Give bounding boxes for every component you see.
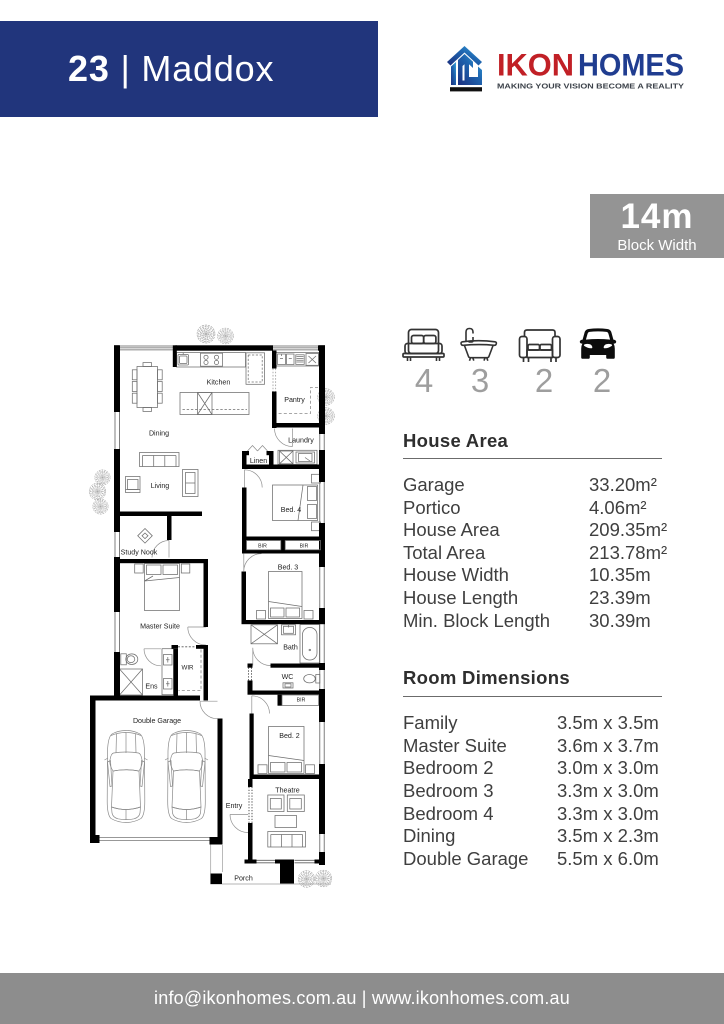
svg-text:Linen: Linen — [250, 457, 267, 465]
svg-text:Ens: Ens — [145, 683, 158, 691]
svg-text:Living: Living — [151, 482, 170, 490]
svg-text:Bath: Bath — [283, 644, 298, 652]
svg-text:Double Garage: Double Garage — [133, 717, 181, 725]
svg-text:Study Nook: Study Nook — [121, 549, 158, 557]
svg-text:IKON: IKON — [497, 47, 574, 83]
svg-text:BIR: BIR — [297, 698, 306, 704]
svg-text:Master Suite: Master Suite — [140, 623, 180, 631]
svg-text:Theatre: Theatre — [275, 787, 300, 795]
svg-text:BIR: BIR — [258, 543, 267, 549]
svg-text:Bed. 3: Bed. 3 — [278, 564, 299, 572]
svg-text:Laundry: Laundry — [288, 437, 314, 445]
svg-text:MAKING YOUR VISION BECOME A RE: MAKING YOUR VISION BECOME A REALITY — [497, 82, 684, 91]
svg-text:Entry: Entry — [226, 802, 243, 810]
svg-text:HOMES: HOMES — [578, 47, 684, 83]
svg-text:Porch: Porch — [234, 875, 253, 883]
svg-text:Bed. 4: Bed. 4 — [281, 506, 302, 514]
svg-text:WC: WC — [282, 673, 294, 681]
svg-text:Kitchen: Kitchen — [207, 379, 231, 387]
svg-text:Pantry: Pantry — [284, 396, 305, 404]
svg-text:WIR: WIR — [181, 665, 194, 672]
svg-text:Bed. 2: Bed. 2 — [279, 732, 300, 740]
svg-text:BIR: BIR — [300, 543, 309, 549]
svg-text:Dining: Dining — [149, 430, 169, 438]
